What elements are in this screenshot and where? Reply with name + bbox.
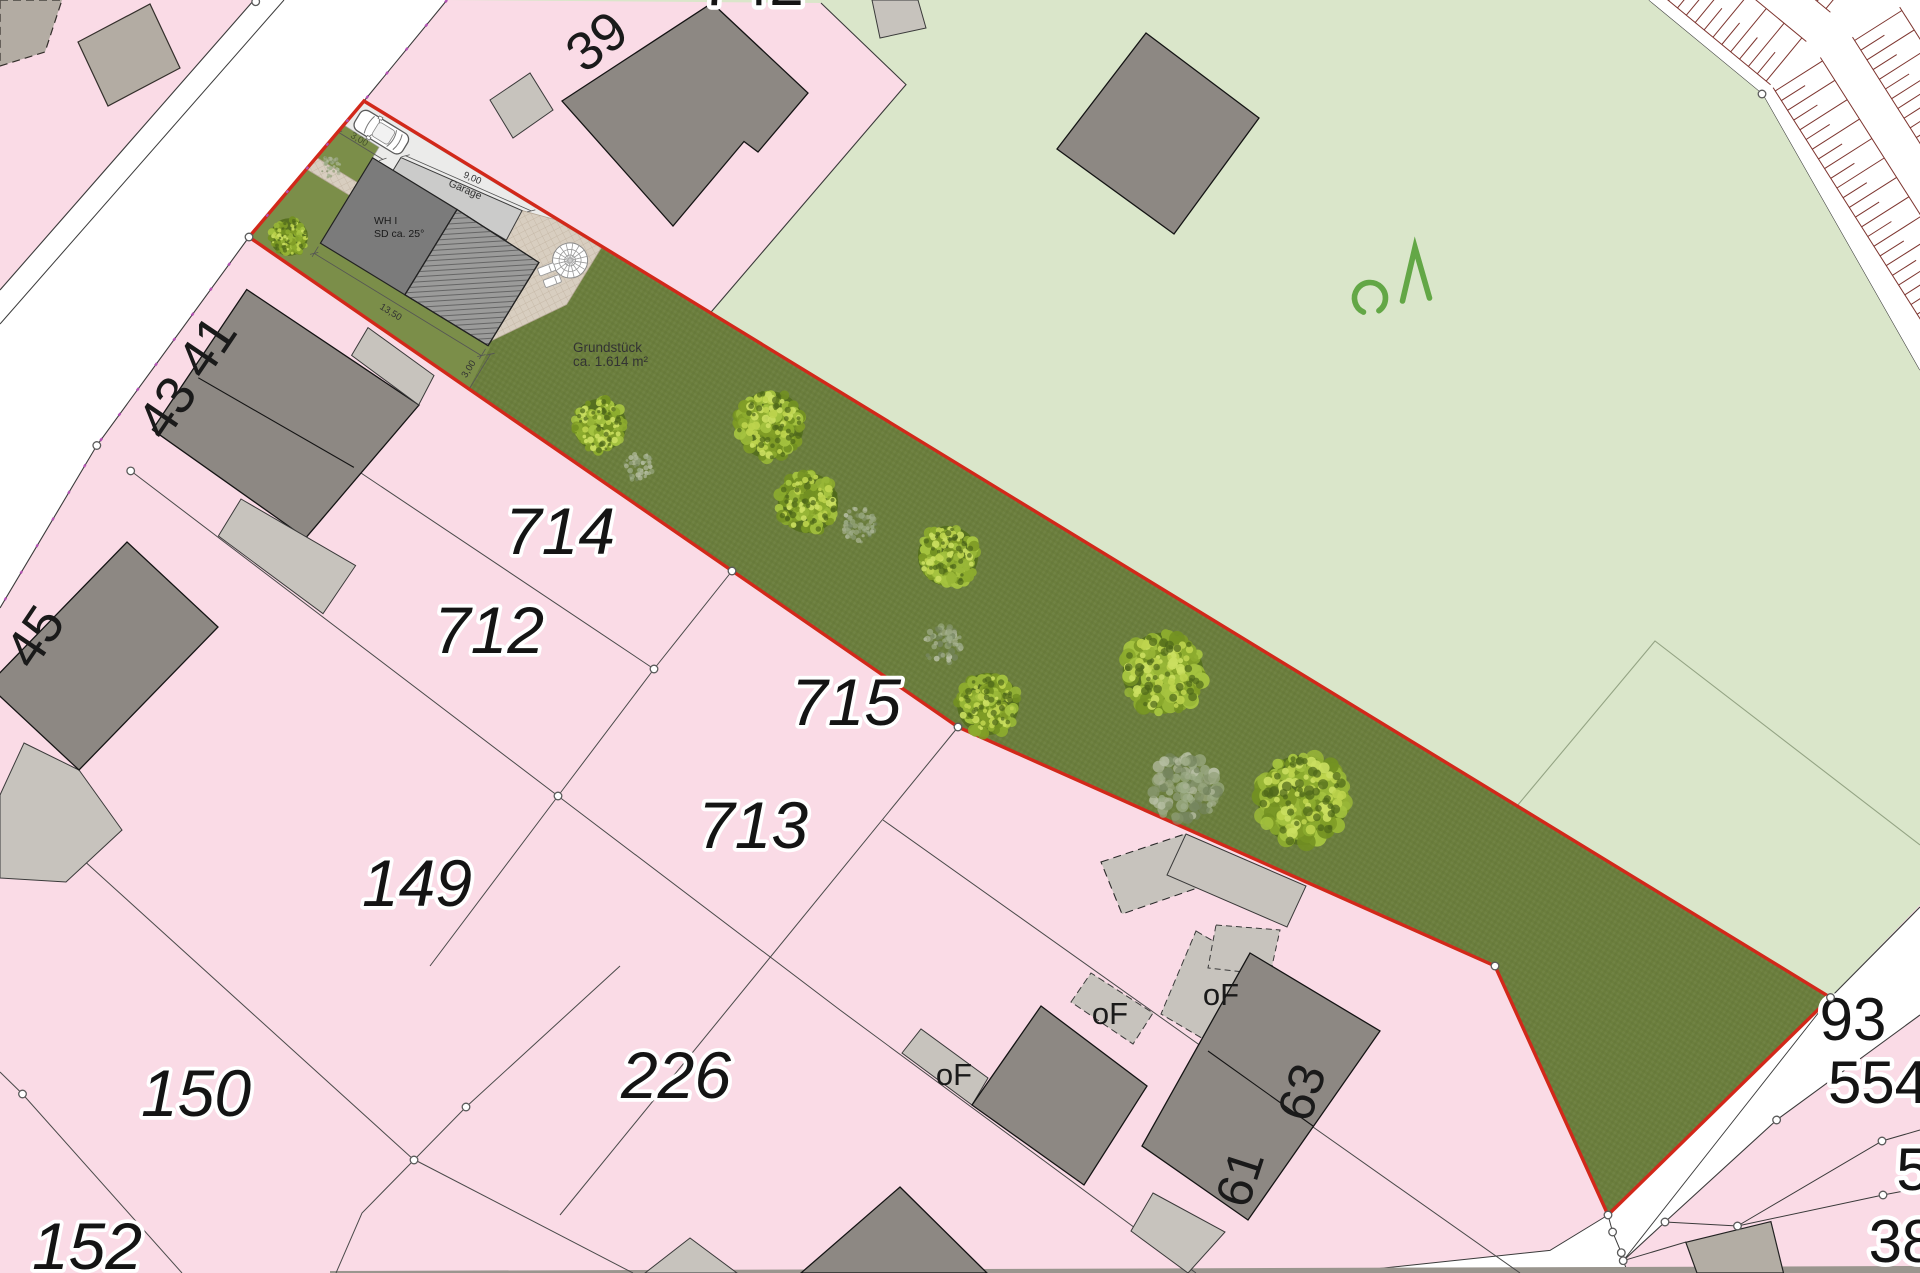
svg-text:715: 715 bbox=[791, 665, 901, 739]
svg-text:5: 5 bbox=[1896, 1136, 1920, 1203]
svg-text:SD ca. 25°: SD ca. 25° bbox=[374, 228, 424, 240]
svg-text:150: 150 bbox=[141, 1056, 251, 1130]
svg-text:oF: oF bbox=[936, 1057, 972, 1092]
svg-text:714: 714 bbox=[505, 494, 615, 568]
svg-text:WH I: WH I bbox=[374, 215, 397, 227]
svg-text:226: 226 bbox=[620, 1038, 731, 1112]
svg-text:38: 38 bbox=[1869, 1208, 1920, 1273]
svg-text:554: 554 bbox=[1828, 1049, 1920, 1116]
svg-text:Grundstück: Grundstück bbox=[573, 340, 642, 355]
svg-text:712: 712 bbox=[434, 593, 544, 667]
svg-text:oF: oF bbox=[1203, 977, 1239, 1012]
svg-text:149: 149 bbox=[362, 846, 472, 920]
svg-text:152: 152 bbox=[32, 1209, 142, 1273]
svg-text:ca. 1.614 m²: ca. 1.614 m² bbox=[573, 354, 649, 369]
svg-text:742: 742 bbox=[700, 0, 803, 19]
svg-text:713: 713 bbox=[698, 788, 808, 862]
svg-text:oF: oF bbox=[1092, 996, 1128, 1031]
